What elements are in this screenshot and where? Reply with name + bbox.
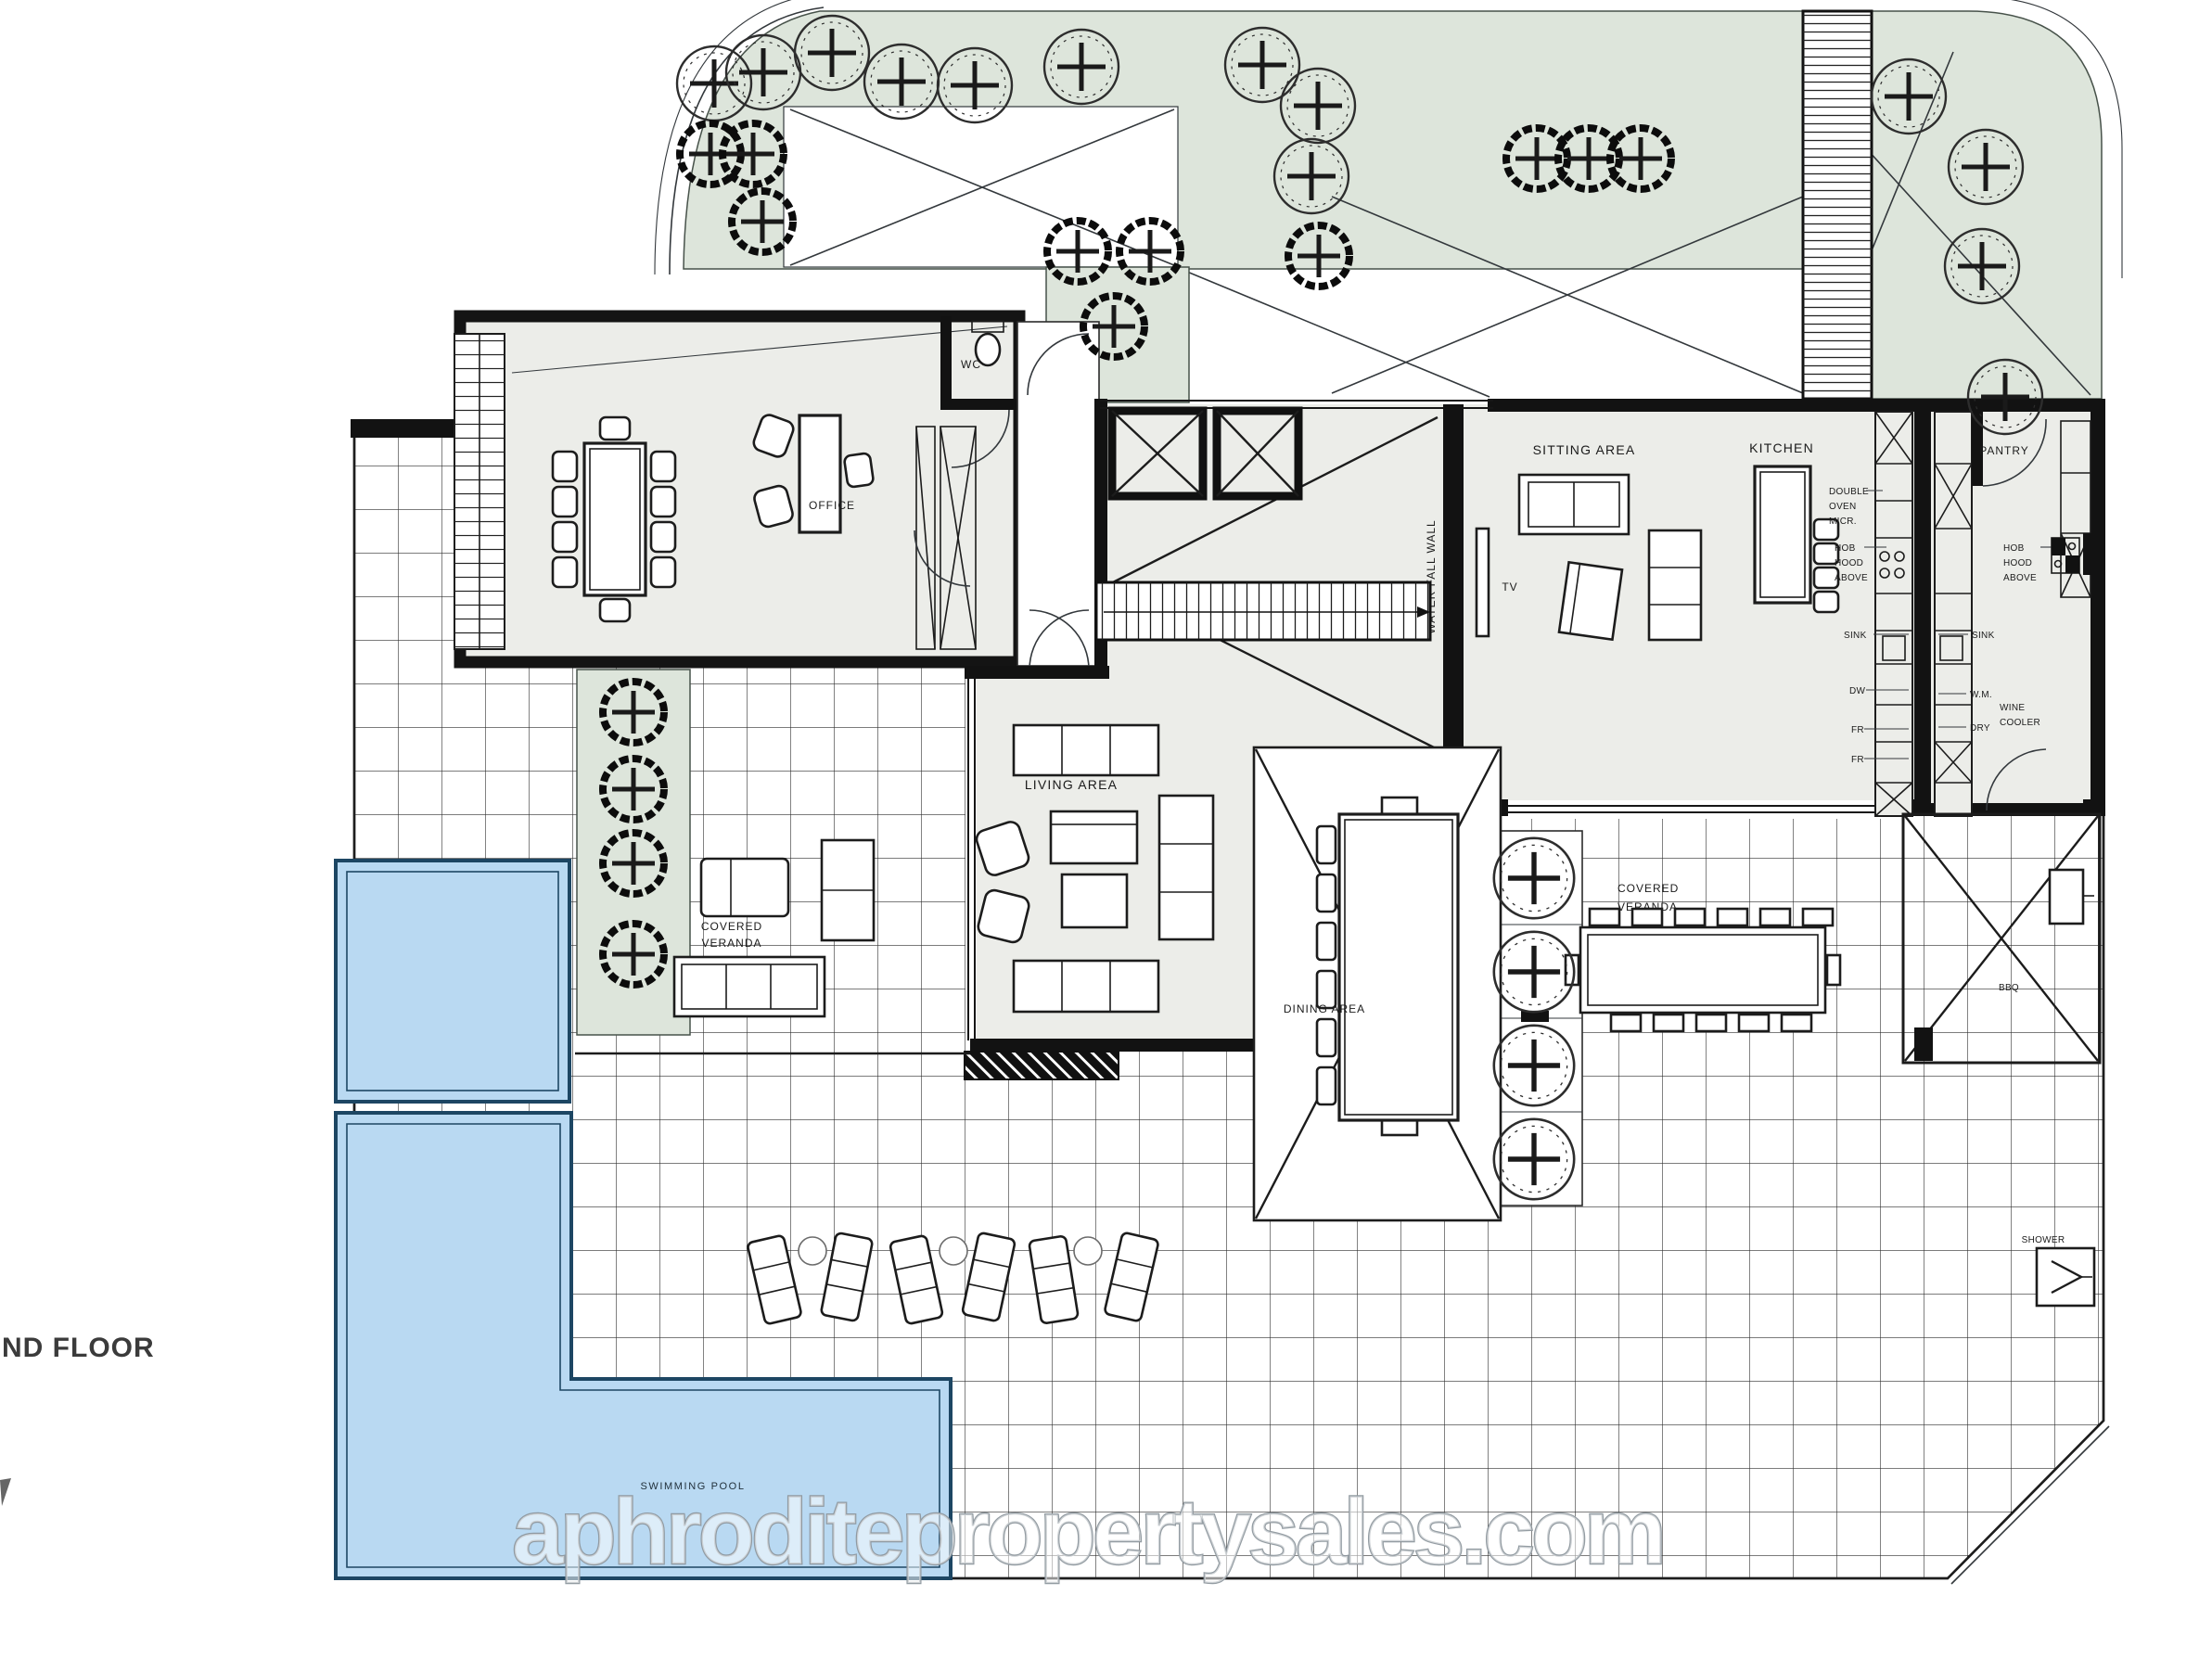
dining-pergola: DINING AREA xyxy=(1254,747,1501,1220)
bbq-label: BBQ xyxy=(1999,983,2019,993)
tv-label: TV xyxy=(1502,581,1517,593)
hob-left-label-3: ABOVE xyxy=(1835,573,1868,583)
watermark: aphroditepropertysales.com xyxy=(512,1480,1663,1584)
dryer-label: DRY xyxy=(1970,723,1990,734)
sink-right-label: SINK xyxy=(1972,631,1995,641)
office-wing: OFFICE WC xyxy=(454,316,1019,662)
hob-right-label-3: ABOVE xyxy=(2003,573,2037,583)
dining-area-label: DINING AREA xyxy=(1284,1002,1365,1015)
hob-left-label-2: HOOD xyxy=(1835,558,1863,568)
fridge1-label: FR xyxy=(1851,725,1864,735)
hob-right-label-2: HOOD xyxy=(2003,558,2032,568)
covered-veranda-right-label-1: COVERED xyxy=(1617,882,1679,895)
covered-veranda-left-label-1: COVERED xyxy=(701,920,762,933)
lift-shafts xyxy=(1112,411,1298,496)
hob-right-label-1: HOB xyxy=(2003,543,2025,554)
dishwasher-label: DW xyxy=(1849,686,1866,696)
pantry-label: PANTRY xyxy=(1979,444,2029,457)
floor-plan-page: SWIMMING POOL xyxy=(0,0,2212,1659)
kitchen-label: KITCHEN xyxy=(1749,440,1814,455)
wine-cooler-label-1: WINE xyxy=(2000,703,2025,713)
covered-veranda-left-label-2: VERANDA xyxy=(701,937,761,950)
floor-plan-drawing: SWIMMING POOL xyxy=(0,0,2212,1659)
entrance-corridor xyxy=(1017,322,1099,670)
sliding-door-track xyxy=(965,1052,1119,1079)
louvre-strip xyxy=(1803,11,1872,399)
text-fragment xyxy=(0,1478,11,1506)
wine-cooler-label-2: COOLER xyxy=(2000,718,2040,728)
living-area-label: LIVING AREA xyxy=(1025,777,1118,792)
washing-machine-label: W.M. xyxy=(1970,690,1992,700)
scullery xyxy=(1875,412,1972,816)
office-label: OFFICE xyxy=(809,499,855,512)
wc-label: WC xyxy=(961,358,981,371)
staircase xyxy=(1096,582,1430,640)
floor-title: ND FLOOR xyxy=(2,1333,155,1363)
hob-left-label-1: HOB xyxy=(1835,543,1856,554)
tv-unit xyxy=(1477,529,1489,636)
double-oven-label-1: DOUBLE xyxy=(1829,487,1869,497)
sink-left-label: SINK xyxy=(1844,631,1867,641)
sitting-area-label: SITTING AREA xyxy=(1533,442,1636,457)
fridge2-label: FR xyxy=(1851,755,1864,765)
double-oven-label-3: MICR. xyxy=(1829,517,1857,527)
office-window-wall xyxy=(454,334,505,649)
shower-label: SHOWER xyxy=(2022,1235,2065,1245)
double-oven-label-2: OVEN xyxy=(1829,502,1857,512)
